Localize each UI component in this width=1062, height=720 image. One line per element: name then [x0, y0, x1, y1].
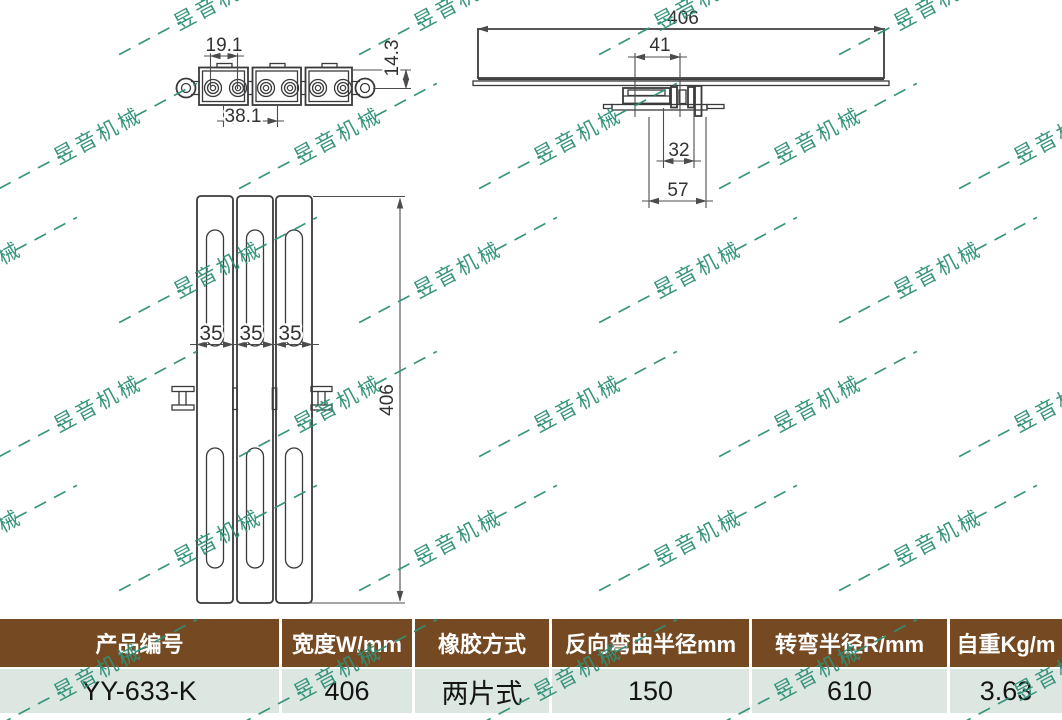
- datasheet-page: 19.1 38.1 14.3: [0, 0, 1062, 720]
- header-cell-weight: 自重Kg/m: [950, 619, 1062, 667]
- cell-turn-radius: 610: [752, 669, 947, 713]
- cell-width: 406: [282, 669, 412, 713]
- spec-table-header-row: 产品编号 宽度W/mm 橡胶方式 反向弯曲半径mm 转弯半径R/mm 自重Kg/…: [0, 619, 1062, 667]
- spec-table-data-row: YY-633-K 406 两片式 150 610 3.63: [0, 669, 1062, 713]
- header-cell-width: 宽度W/mm: [282, 619, 412, 667]
- dim-label-belt-width-section: 406: [667, 8, 699, 29]
- slat-plate: [197, 196, 233, 603]
- chain-plan-view: 35 35 35 406: [172, 196, 405, 603]
- header-cell-product-code: 产品编号: [0, 619, 279, 667]
- cell-rubber-type: 两片式: [415, 669, 549, 713]
- dim-label-inner-width: 32: [668, 140, 689, 161]
- chain-link-block: [253, 68, 302, 106]
- dim-label-outer-width: 57: [667, 180, 688, 201]
- cell-product-code: YY-633-K: [0, 669, 279, 713]
- slat-plate: [237, 196, 273, 603]
- dim-label-slat-3: 35: [278, 322, 301, 345]
- slat-plate: [276, 196, 312, 603]
- chain-attachment-right: [311, 387, 332, 411]
- header-cell-turn-radius: 转弯半径R/mm: [752, 619, 947, 667]
- spec-table: 产品编号 宽度W/mm 橡胶方式 反向弯曲半径mm 转弯半径R/mm 自重Kg/…: [0, 619, 1062, 713]
- dim-label-belt-width-plan: 406: [377, 384, 398, 416]
- dim-label-double-pitch: 38.1: [225, 106, 262, 127]
- cell-back-radius: 150: [552, 669, 749, 713]
- technical-drawing-svg: 19.1 38.1 14.3: [0, 0, 1062, 620]
- cell-weight: 3.63: [950, 669, 1062, 713]
- dim-label-mount-width: 41: [649, 35, 670, 56]
- chain-pins: [205, 80, 352, 97]
- dim-label-slat-2: 35: [239, 322, 262, 345]
- chain-attachment-left: [172, 387, 194, 411]
- dim-label-slat-1: 35: [199, 322, 222, 345]
- header-cell-rubber-type: 橡胶方式: [415, 619, 549, 667]
- header-cell-back-radius: 反向弯曲半径mm: [552, 619, 749, 667]
- dim-label-chain-height: 14.3: [382, 40, 403, 77]
- dim-label-pitch: 19.1: [206, 35, 243, 56]
- slat-section: [478, 29, 884, 78]
- chain-side-view: 19.1 38.1 14.3: [177, 35, 412, 127]
- chain-section-view: 406 41 32 57: [473, 8, 889, 208]
- slat-slots: [207, 230, 303, 568]
